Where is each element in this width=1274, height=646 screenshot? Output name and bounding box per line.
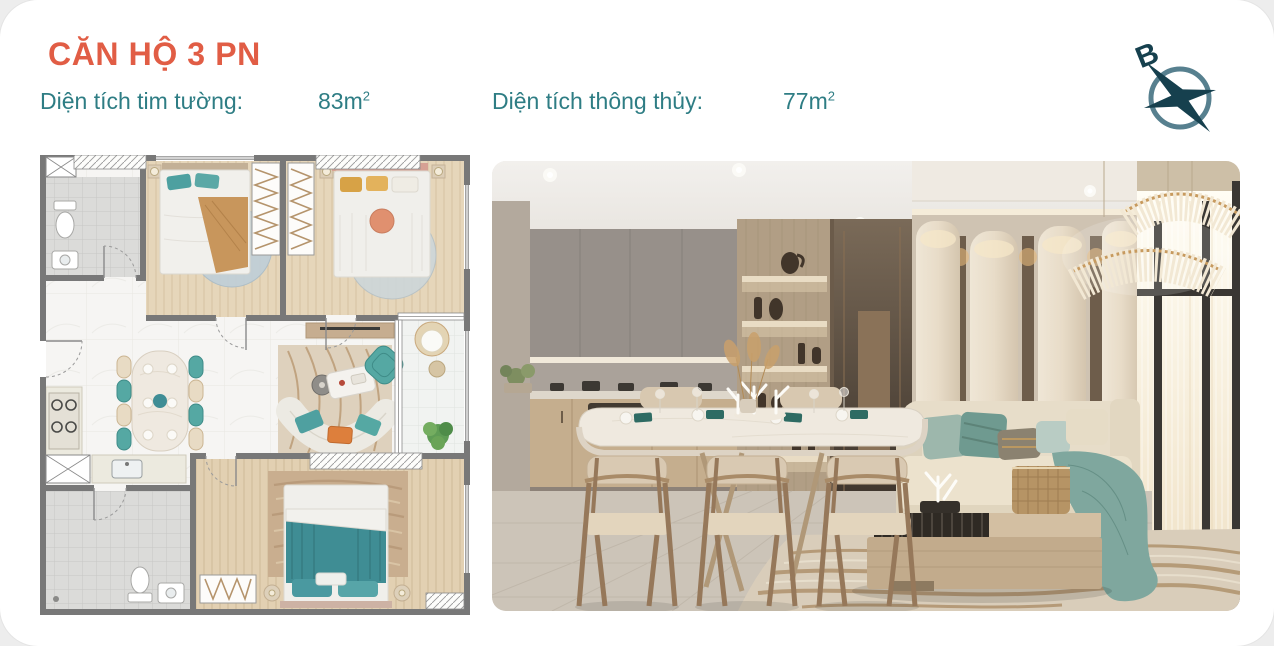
compass-star bbox=[1144, 62, 1216, 132]
metric-gross-area-label: Diện tích tim tường: bbox=[40, 88, 243, 115]
floor-plan-image bbox=[40, 155, 470, 615]
compass-icon: B bbox=[1124, 32, 1228, 144]
basket bbox=[1012, 466, 1070, 514]
metric-net-area-label: Diện tích thông thủy: bbox=[492, 88, 703, 115]
apartment-info-card: CĂN HỘ 3 PN Diện tích tim tường: 83m2 Di… bbox=[0, 0, 1274, 646]
floor-plan-svg bbox=[40, 155, 470, 615]
interior-photo-svg bbox=[492, 161, 1240, 611]
metric-gross-area-value: 83m2 bbox=[318, 88, 370, 115]
kitchen-cabinets bbox=[492, 201, 737, 493]
page-title: CĂN HỘ 3 PN bbox=[48, 36, 261, 73]
metric-net-area-value: 77m2 bbox=[783, 88, 835, 115]
interior-photo bbox=[492, 161, 1240, 611]
compass-north-label: B bbox=[1131, 36, 1163, 75]
